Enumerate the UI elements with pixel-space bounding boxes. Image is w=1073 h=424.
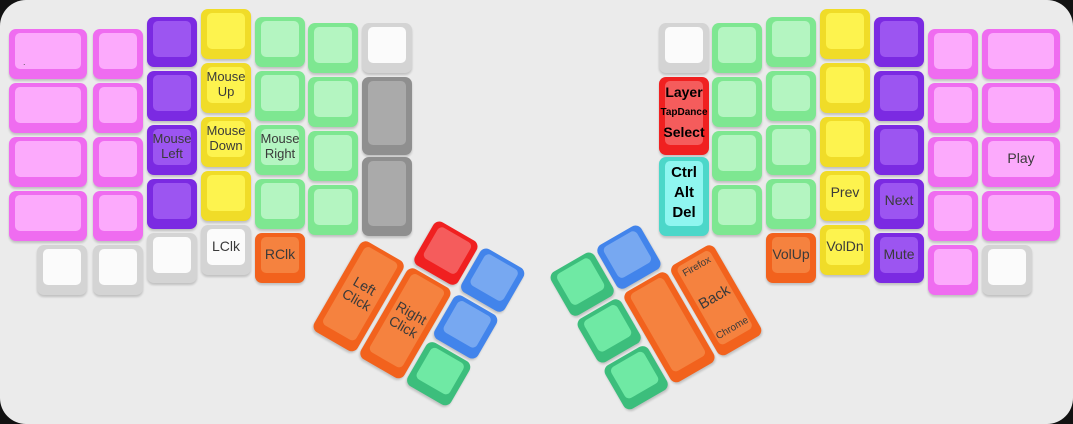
key-right-thumb-blue-face xyxy=(602,229,653,279)
key-play-face: Play xyxy=(988,141,1054,177)
key-layer-tapdance-select-label: Layer xyxy=(665,85,702,101)
key-right-col5-row1-face xyxy=(772,21,810,57)
key-right-col1-row5[interactable] xyxy=(982,245,1032,295)
keymap-canvas: .Mouse LeftMouse UpMouse DownLClkMouse R… xyxy=(0,0,1073,424)
key-left-col1-row2-face xyxy=(15,87,81,123)
key-left-col1-row5[interactable] xyxy=(37,245,87,295)
key-right-col2-row3[interactable] xyxy=(928,137,978,187)
key-ctrl-alt-del-label: Del xyxy=(672,205,695,222)
key-right-col2-row1[interactable] xyxy=(928,29,978,79)
key-right-col5-row3-face xyxy=(772,129,810,165)
key-next-label: Next xyxy=(885,193,914,209)
key-left-col4-row4[interactable] xyxy=(201,171,251,221)
key-left-col2-row5[interactable] xyxy=(93,245,143,295)
key-ctrl-alt-del-face: CtrlAltDel xyxy=(665,161,703,226)
key-mute[interactable]: Mute xyxy=(874,233,924,283)
key-left-col2-row2[interactable] xyxy=(93,83,143,133)
key-right-thumb-green-top-face xyxy=(555,256,606,306)
key-left-col1-row4[interactable] xyxy=(9,191,87,241)
key-mouse-down-label: Mouse Down xyxy=(206,124,245,153)
key-left-col6-row4-face xyxy=(314,189,352,225)
key-voldn-face: VolDn xyxy=(826,229,864,265)
key-left-col6-row3[interactable] xyxy=(308,131,358,181)
key-left-col3-row5-face xyxy=(153,237,191,273)
key-left-col7-tall1[interactable] xyxy=(362,77,412,155)
key-mouse-right-label: Mouse Right xyxy=(260,132,299,161)
key-right-col1-row1-face xyxy=(988,33,1054,69)
key-mouse-down[interactable]: Mouse Down xyxy=(201,117,251,167)
key-right-col5-row1[interactable] xyxy=(766,17,816,67)
key-left-col3-row4[interactable] xyxy=(147,179,197,229)
key-left-col2-row4[interactable] xyxy=(93,191,143,241)
key-left-col6-row1[interactable] xyxy=(308,23,358,73)
key-volup[interactable]: VolUp xyxy=(766,233,816,283)
key-left-col3-row2[interactable] xyxy=(147,71,197,121)
key-right-col2-row5[interactable] xyxy=(928,245,978,295)
key-right-col4-row3[interactable] xyxy=(820,117,870,167)
key-next-face: Next xyxy=(880,183,918,219)
key-left-col3-row5[interactable] xyxy=(147,233,197,283)
key-right-col4-row1-face xyxy=(826,13,864,49)
key-right-col1-row5-face xyxy=(988,249,1026,285)
key-right-col2-row4-face xyxy=(934,195,972,231)
key-lclk-face: LClk xyxy=(207,229,245,265)
key-left-col4-row4-face xyxy=(207,175,245,211)
key-layer-tapdance-select[interactable]: LayerTapDanceSelect xyxy=(659,77,709,155)
key-mouse-left[interactable]: Mouse Left xyxy=(147,125,197,175)
key-right-col6-row1-face xyxy=(718,27,756,63)
key-layer-tapdance-select-label: TapDance xyxy=(660,107,707,118)
key-right-col7-row1-face xyxy=(665,27,703,63)
key-mute-label: Mute xyxy=(883,247,914,263)
key-layer-tapdance-select-face: LayerTapDanceSelect xyxy=(665,81,703,145)
key-right-col1-row4-face xyxy=(988,195,1054,231)
key-right-col4-row2[interactable] xyxy=(820,63,870,113)
key-left-thumb-red-face xyxy=(422,225,473,275)
key-mouse-right-face: Mouse Right xyxy=(261,129,299,165)
key-mute-face: Mute xyxy=(880,237,918,273)
key-rclk[interactable]: RClk xyxy=(255,233,305,283)
key-right-col2-row4[interactable] xyxy=(928,191,978,241)
key-left-col3-row1[interactable] xyxy=(147,17,197,67)
key-left-col2-row1-face xyxy=(99,33,137,69)
key-play-label: Play xyxy=(1007,151,1034,167)
key-right-col6-row3[interactable] xyxy=(712,131,762,181)
key-left-col3-row2-face xyxy=(153,75,191,111)
key-left-col5-row1[interactable] xyxy=(255,17,305,67)
key-lclk[interactable]: LClk xyxy=(201,225,251,275)
key-lclk-label: LClk xyxy=(212,239,240,255)
key-right-col5-row3[interactable] xyxy=(766,125,816,175)
key-left-col4-row1-face xyxy=(207,13,245,49)
key-left-col6-row3-face xyxy=(314,135,352,171)
key-left-col2-row4-face xyxy=(99,195,137,231)
key-left-thumb-blue-mid-face xyxy=(442,299,493,349)
key-ctrl-alt-del-label: Ctrl xyxy=(671,165,697,182)
key-rclk-face: RClk xyxy=(261,237,299,273)
key-left-col1-row3[interactable] xyxy=(9,137,87,187)
key-mouse-right[interactable]: Mouse Right xyxy=(255,125,305,175)
key-left-col7-tall1-face xyxy=(368,81,406,145)
key-left-col6-row4[interactable] xyxy=(308,185,358,235)
key-left-col2-row5-face xyxy=(99,249,137,285)
key-right-col2-row3-face xyxy=(934,141,972,177)
key-right-col7-row1[interactable] xyxy=(659,23,709,73)
key-prev[interactable]: Prev xyxy=(820,171,870,221)
key-mouse-down-face: Mouse Down xyxy=(207,121,245,157)
key-left-col1-row4-face xyxy=(15,195,81,231)
key-mouse-left-face: Mouse Left xyxy=(153,129,191,165)
key-right-thumb-green-bot-face xyxy=(609,350,660,400)
key-play[interactable]: Play xyxy=(982,137,1060,187)
key-right-col3-row2-face xyxy=(880,75,918,111)
key-right-col2-row1-face xyxy=(934,33,972,69)
key-right-thumb-green-mid-face xyxy=(582,303,633,353)
key-right-col6-row3-face xyxy=(718,135,756,171)
key-left-col1-row3-face xyxy=(15,141,81,177)
key-right-col1-row2[interactable] xyxy=(982,83,1060,133)
key-left-col7-row1-face xyxy=(368,27,406,63)
key-volup-label: VolUp xyxy=(772,247,809,263)
key-voldn[interactable]: VolDn xyxy=(820,225,870,275)
key-left-col6-row2[interactable] xyxy=(308,77,358,127)
key-right-col5-row4-face xyxy=(772,183,810,219)
key-right-col1-row1[interactable] xyxy=(982,29,1060,79)
key-next[interactable]: Next xyxy=(874,179,924,229)
key-right-col5-row2[interactable] xyxy=(766,71,816,121)
key-right-col6-row4[interactable] xyxy=(712,185,762,235)
key-left-col3-row4-face xyxy=(153,183,191,219)
key-left-col7-row1[interactable] xyxy=(362,23,412,73)
key-left-col7-tall2-face xyxy=(368,161,406,226)
key-left-col2-row3[interactable] xyxy=(93,137,143,187)
key-right-col3-row2[interactable] xyxy=(874,71,924,121)
key-mouse-up-label: Mouse Up xyxy=(206,70,245,99)
key-right-click-label: Right Click xyxy=(385,299,429,342)
key-right-col4-row2-face xyxy=(826,67,864,103)
key-right-col3-row3-face xyxy=(880,129,918,165)
key-back-firefox-chrome-label: Firefox xyxy=(681,255,713,280)
key-left-col5-row2-face xyxy=(261,75,299,111)
key-left-col5-row4[interactable] xyxy=(255,179,305,229)
key-right-col3-row1[interactable] xyxy=(874,17,924,67)
key-left-col2-row1[interactable] xyxy=(93,29,143,79)
key-mouse-up[interactable]: Mouse Up xyxy=(201,63,251,113)
key-layer-tapdance-select-label: Select xyxy=(663,125,704,141)
key-left-thumb-blue-top-face xyxy=(469,252,520,302)
key-right-col6-row1[interactable] xyxy=(712,23,762,73)
key-left-col7-tall2[interactable] xyxy=(362,157,412,236)
key-left-col5-row4-face xyxy=(261,183,299,219)
key-right-col1-row2-face xyxy=(988,87,1054,123)
key-back-firefox-chrome-label: Back xyxy=(696,282,733,313)
key-right-col1-row4[interactable] xyxy=(982,191,1060,241)
key-left-thumb-green-face xyxy=(415,346,466,396)
key-left-col1-row5-face xyxy=(43,249,81,285)
key-right-col6-row2-face xyxy=(718,81,756,117)
key-left-col1-row1-face: . xyxy=(15,33,81,69)
key-left-col6-row2-face xyxy=(314,81,352,117)
key-right-col5-row4[interactable] xyxy=(766,179,816,229)
key-left-col5-row2[interactable] xyxy=(255,71,305,121)
key-voldn-label: VolDn xyxy=(826,239,863,255)
key-mouse-left-label: Mouse Left xyxy=(152,132,191,161)
key-right-col2-row2[interactable] xyxy=(928,83,978,133)
key-left-col4-row1[interactable] xyxy=(201,9,251,59)
key-right-col2-row2-face xyxy=(934,87,972,123)
key-left-click-label: Left Click xyxy=(339,273,381,315)
key-left-col6-row1-face xyxy=(314,27,352,63)
key-right-col6-row2[interactable] xyxy=(712,77,762,127)
key-left-col1-row2[interactable] xyxy=(9,83,87,133)
key-right-col4-row1[interactable] xyxy=(820,9,870,59)
key-right-col6-row4-face xyxy=(718,189,756,225)
key-left-col3-row1-face xyxy=(153,21,191,57)
key-prev-label: Prev xyxy=(831,185,860,201)
key-prev-face: Prev xyxy=(826,175,864,211)
key-left-col2-row3-face xyxy=(99,141,137,177)
key-mouse-up-face: Mouse Up xyxy=(207,67,245,103)
key-volup-face: VolUp xyxy=(772,237,810,273)
key-right-col3-row1-face xyxy=(880,21,918,57)
key-left-col1-row1[interactable]: . xyxy=(9,29,87,79)
key-rclk-label: RClk xyxy=(265,247,295,263)
key-ctrl-alt-del-label: Alt xyxy=(674,185,694,202)
key-ctrl-alt-del[interactable]: CtrlAltDel xyxy=(659,157,709,236)
key-left-col5-row1-face xyxy=(261,21,299,57)
key-right-col3-row3[interactable] xyxy=(874,125,924,175)
key-right-col5-row2-face xyxy=(772,75,810,111)
key-right-col2-row5-face xyxy=(934,249,972,285)
key-right-col4-row3-face xyxy=(826,121,864,157)
key-left-col2-row2-face xyxy=(99,87,137,123)
key-left-col1-row1-label: . xyxy=(23,57,26,67)
key-back-firefox-chrome-label: Chrome xyxy=(714,315,750,342)
